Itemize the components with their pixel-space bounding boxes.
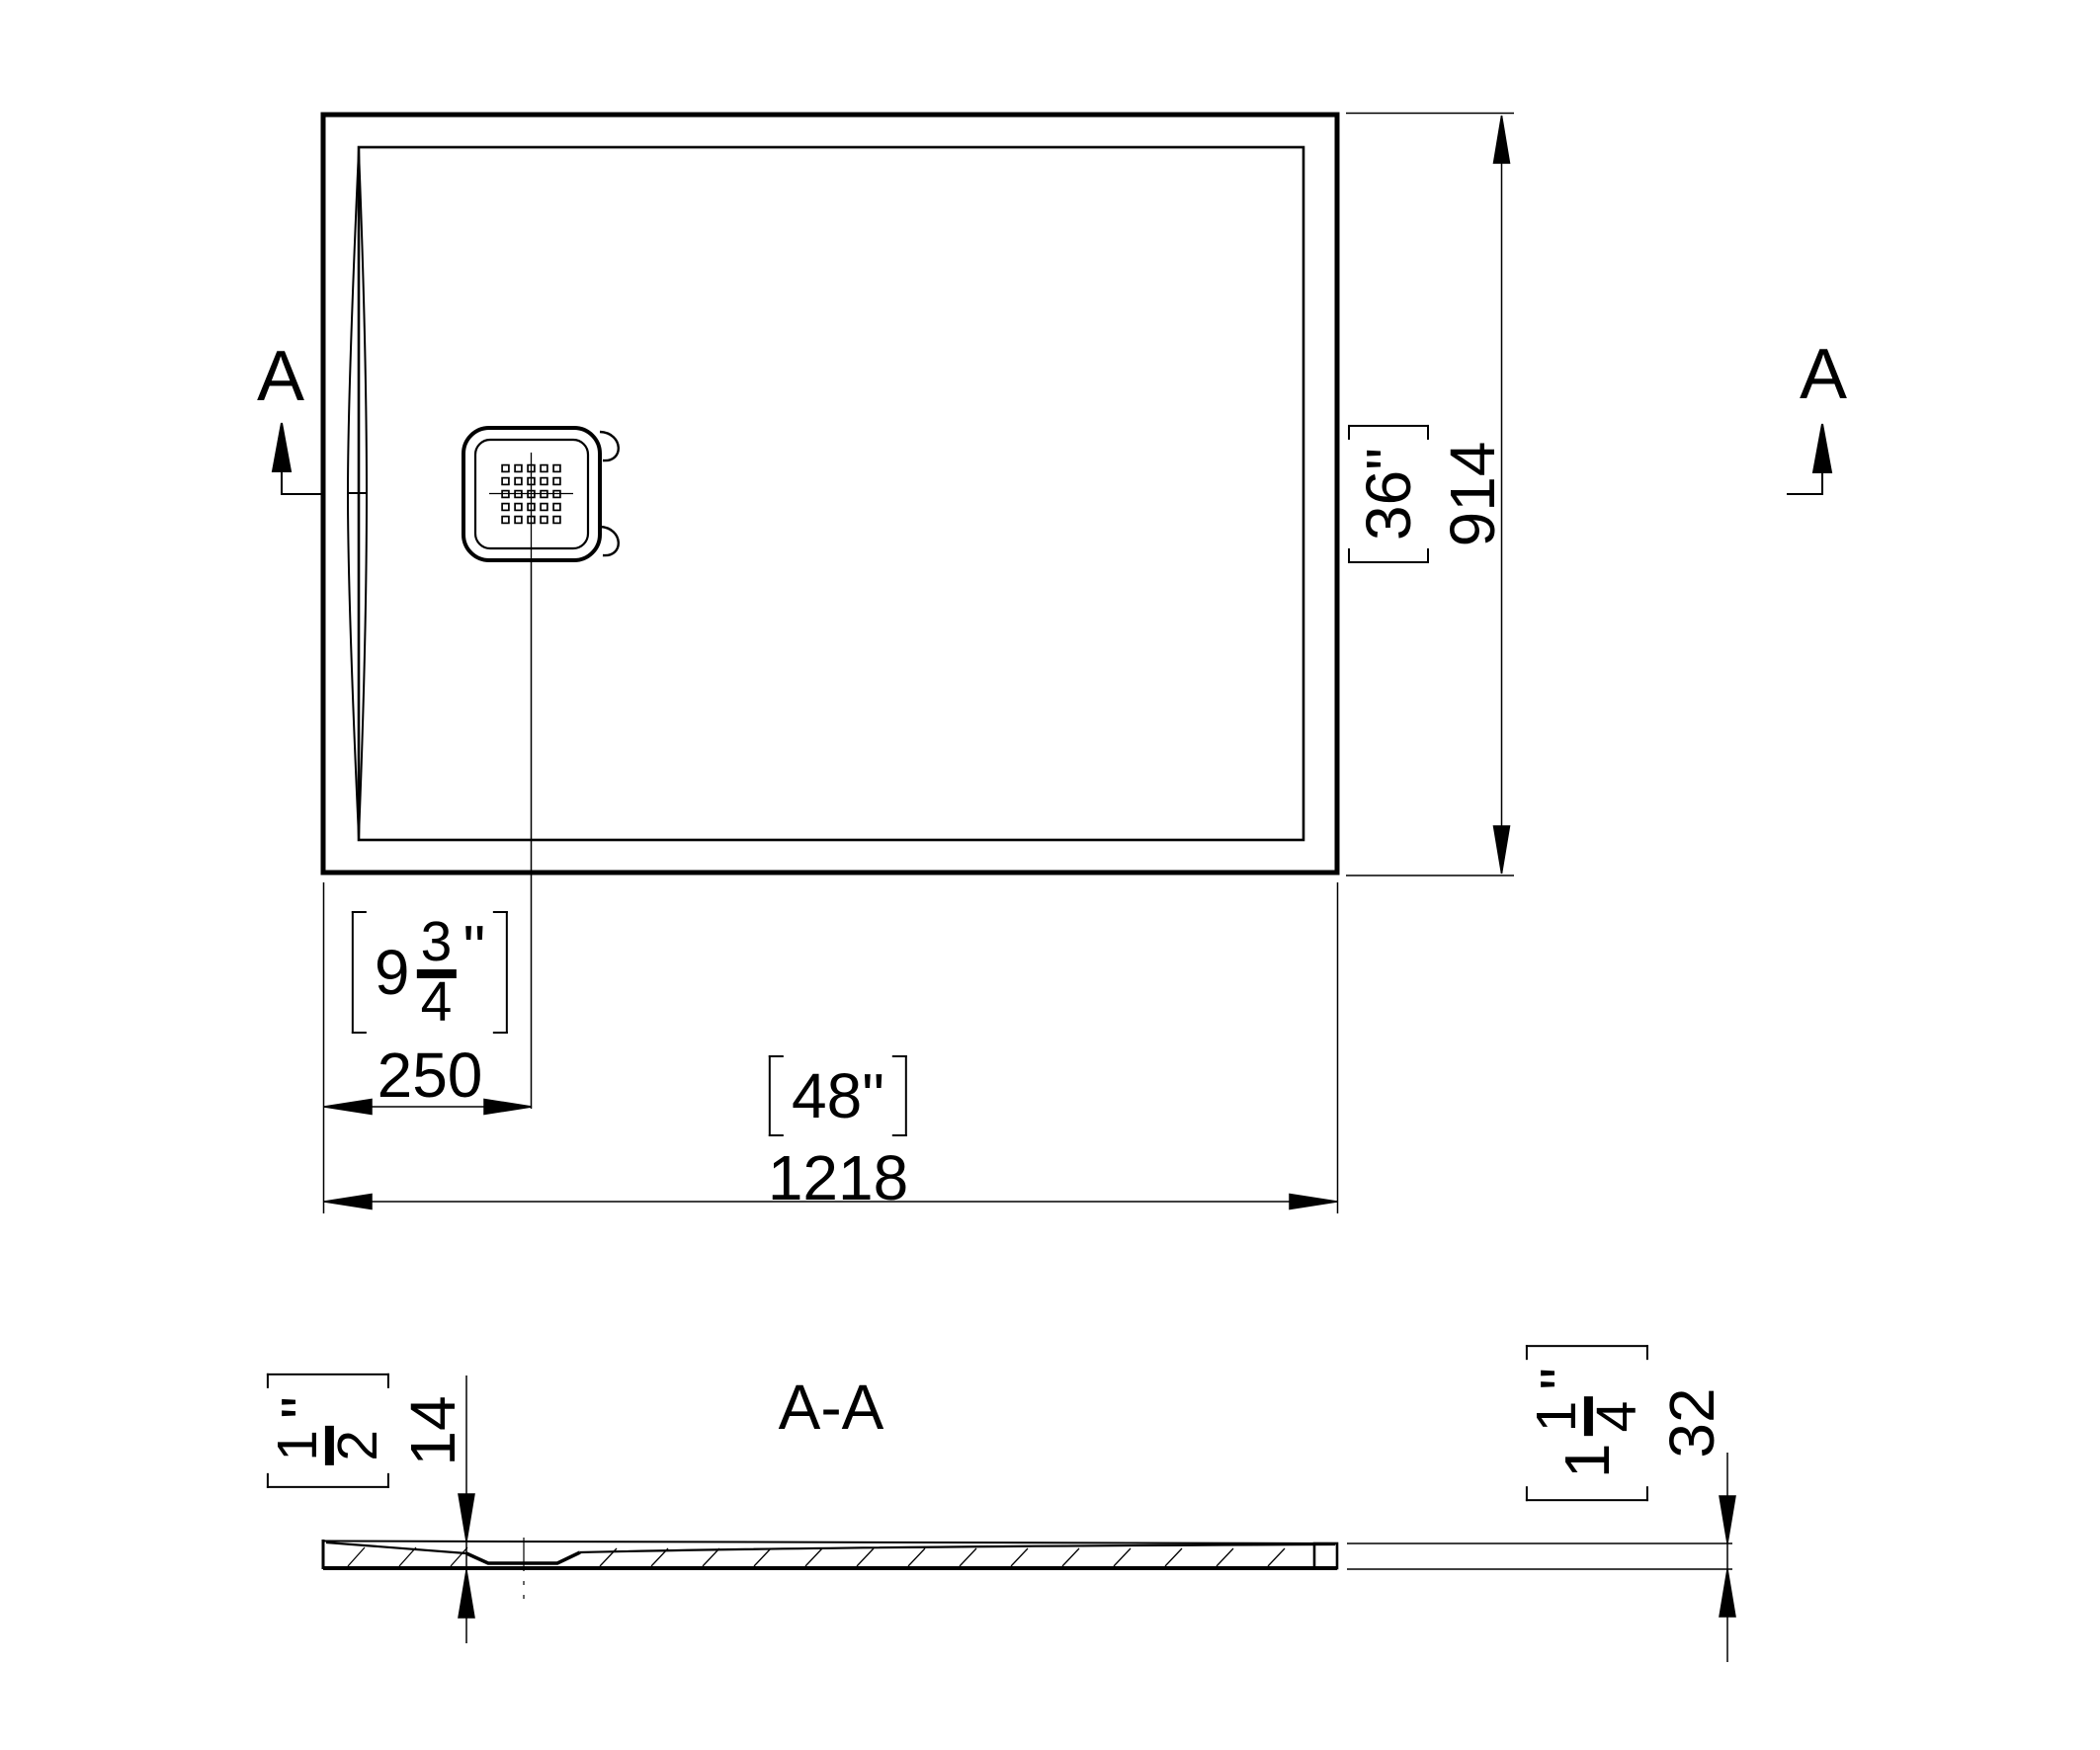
bracket-right <box>493 911 508 1034</box>
dim-width-metric: 1218 <box>768 1146 908 1209</box>
drain <box>463 428 619 560</box>
section-marker-right <box>1787 424 1831 494</box>
dim-drain-offset-label: 9 3 4 " 250 <box>352 911 508 1107</box>
section-top-far-edge <box>324 1542 1336 1544</box>
dim-edge-height-metric: 32 <box>1660 1387 1723 1458</box>
bracket-left <box>1526 1486 1648 1501</box>
dim-edge-height-imperial: 1 1 4 " <box>1526 1345 1648 1501</box>
bracket-right <box>1526 1345 1648 1360</box>
section-right-surface <box>580 1544 1335 1552</box>
drain-clip-tabs <box>600 432 619 555</box>
section-letter-left: A <box>257 341 304 412</box>
bracket-left <box>267 1473 389 1488</box>
dim-depth-label: 36" 914 <box>1348 425 1504 563</box>
bracket-left <box>1348 548 1429 563</box>
dim-edge-height-label: 1 1 4 " 32 <box>1526 1345 1723 1501</box>
section-marker-left <box>273 423 321 494</box>
dim-width-imperial: 48" <box>769 1055 907 1136</box>
bracket-left <box>769 1055 784 1136</box>
section-arrow-up-icon <box>273 423 291 471</box>
dim-width-label: 48" 1218 <box>768 1055 908 1209</box>
dim-min-thickness-imperial: 1 2 " <box>267 1374 389 1488</box>
bracket-left <box>352 911 367 1034</box>
section-view-profile <box>323 1538 1337 1599</box>
section-right-end-cap <box>1314 1543 1337 1568</box>
dim-min-thickness-label: 1 2 " 14 <box>267 1374 464 1488</box>
section-title: A-A <box>779 1375 884 1439</box>
section-arrow-up-icon <box>1813 424 1831 472</box>
fraction: 3 4 <box>416 920 456 1025</box>
bracket-right <box>892 1055 907 1136</box>
bracket-right <box>1348 425 1429 440</box>
technical-drawing-canvas: A A 36" 914 9 3 4 " 250 <box>0 0 2100 1750</box>
fraction: 1 2 <box>276 1426 380 1465</box>
fraction: 1 4 <box>1535 1397 1639 1437</box>
dim-drain-offset-imperial: 9 3 4 " <box>352 911 508 1034</box>
dim-drain-offset-metric: 250 <box>378 1043 483 1107</box>
bracket-right <box>267 1374 389 1388</box>
dim-depth-imperial: 36" <box>1348 425 1429 563</box>
dim-min-thickness-metric: 14 <box>401 1395 464 1465</box>
section-sloped-surface <box>326 1542 466 1553</box>
slope-gully-lens <box>348 150 367 837</box>
dim-depth-metric: 914 <box>1441 442 1504 547</box>
section-letter-right: A <box>1800 339 1847 410</box>
